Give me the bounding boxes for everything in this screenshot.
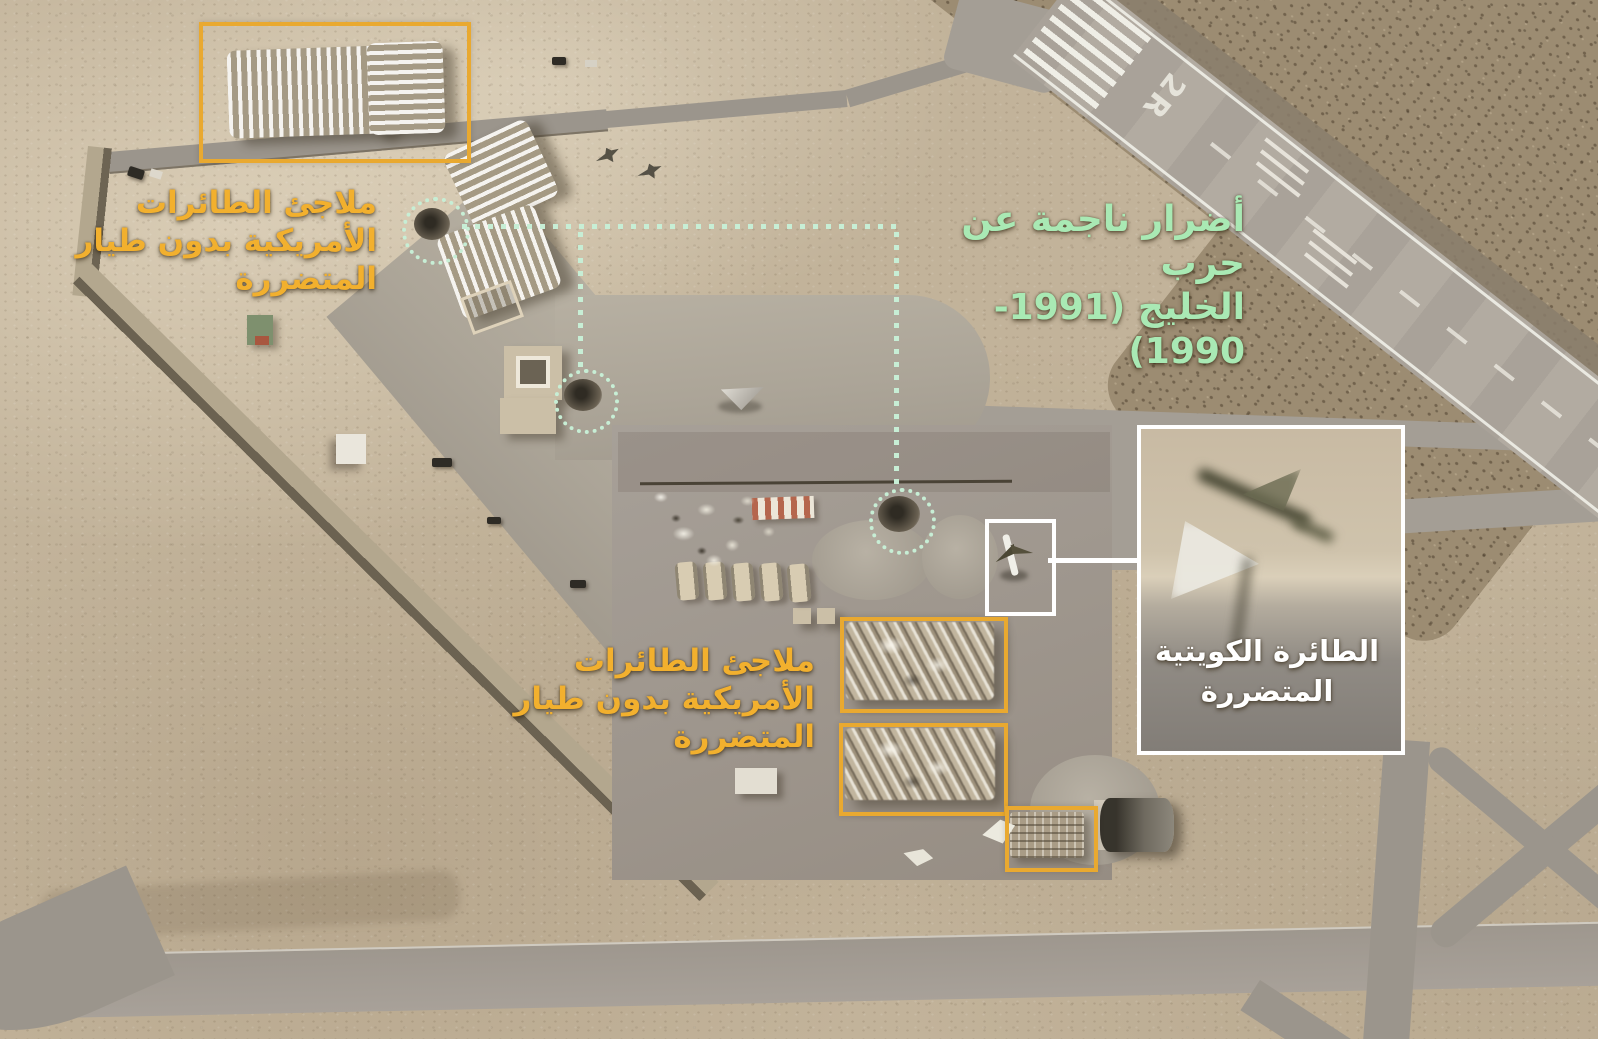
dotted-connector-horizontal bbox=[462, 224, 898, 229]
small-shed bbox=[793, 608, 811, 624]
courtyard-building bbox=[504, 346, 562, 400]
runway-designation: 2R bbox=[1134, 66, 1192, 127]
label-line: أضرار ناجمة عن حرب bbox=[900, 198, 1245, 286]
support-building bbox=[500, 398, 556, 434]
inset-aircraft-nose bbox=[1291, 516, 1335, 543]
dotted-connector-vertical-west bbox=[578, 232, 583, 370]
highlight-box-drone-shelters-north bbox=[199, 22, 471, 163]
highlight-box-destroyed-hangar-north bbox=[840, 617, 1008, 713]
courtyard bbox=[516, 356, 550, 388]
dotted-circle-marker-3 bbox=[869, 488, 936, 555]
inset-label: الطائرة الكويتية المتضررة bbox=[1149, 631, 1385, 711]
label-drone-shelters-north: ملاجئ الطائرات الأمريكية بدون طيار المتض… bbox=[55, 184, 377, 298]
vehicle bbox=[570, 580, 586, 588]
highlight-box-destroyed-hangar-south bbox=[839, 723, 1008, 816]
vehicle bbox=[487, 517, 501, 524]
label-gulf-war-damage: أضرار ناجمة عن حرب الخليج (1991-1990) bbox=[900, 198, 1245, 374]
red-roof-hut bbox=[255, 336, 269, 345]
label-line: الأمريكية بدون طيار bbox=[55, 222, 377, 260]
zoom-inset-kuwaiti-aircraft: الطائرة الكويتية المتضررة bbox=[1137, 425, 1405, 755]
dotted-circle-marker-1 bbox=[402, 197, 470, 265]
vehicle bbox=[552, 57, 566, 65]
label-line: ملاجئ الطائرات bbox=[55, 184, 377, 222]
white-hut bbox=[336, 434, 366, 464]
dotted-connector-vertical-east bbox=[894, 232, 899, 489]
white-shed bbox=[735, 768, 777, 794]
label-drone-shelters-south: ملاجئ الطائرات الأمريكية بدون طيار المتض… bbox=[490, 642, 815, 756]
tent bbox=[786, 563, 811, 603]
label-line: المتضررة bbox=[55, 260, 377, 298]
highlight-box-destroyed-shelter-small bbox=[1005, 806, 1098, 872]
callout-box-kuwaiti-aircraft bbox=[985, 519, 1056, 616]
label-line: ملاجئ الطائرات bbox=[490, 642, 815, 680]
vehicle bbox=[585, 60, 597, 67]
vehicle bbox=[432, 458, 452, 467]
label-line: الخليج (1991-1990) bbox=[900, 286, 1245, 374]
annotated-satellite-image: 2R bbox=[0, 0, 1598, 1039]
callout-connector-line bbox=[1048, 558, 1138, 563]
inset-label-line: المتضررة bbox=[1149, 671, 1385, 711]
label-line: الأمريكية بدون طيار bbox=[490, 680, 815, 718]
inset-label-line: الطائرة الكويتية bbox=[1149, 631, 1385, 671]
debris-field bbox=[638, 478, 790, 574]
dotted-circle-marker-2 bbox=[554, 369, 619, 434]
small-shed bbox=[817, 608, 835, 624]
label-line: المتضررة bbox=[490, 718, 815, 756]
dark-arched-hangar bbox=[1100, 798, 1174, 852]
